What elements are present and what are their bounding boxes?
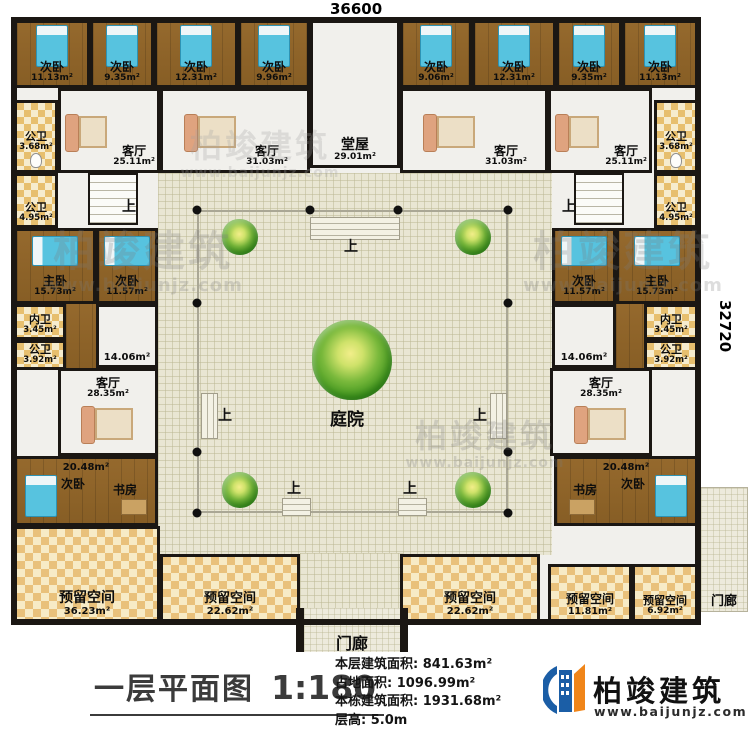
- tree-icon: [455, 219, 491, 255]
- room-area: 11.13m²: [639, 74, 681, 84]
- steps-icon: [398, 498, 427, 516]
- room-bedroom-study-suite: 20.48m² 次卧 书房: [14, 456, 158, 526]
- room-area: 4.95m²: [19, 214, 53, 223]
- entry-corridor-floor: [300, 553, 404, 613]
- sofa-icon: [63, 110, 111, 154]
- column-dot: [504, 448, 513, 457]
- room-area: 20.48m²: [557, 462, 695, 473]
- room-label: 预留空间: [444, 592, 496, 606]
- room-hall: 14.06m²: [96, 304, 158, 368]
- room-label: 预留空间: [566, 593, 614, 606]
- room-bathroom: 公卫4.95m²: [14, 173, 58, 228]
- room-area: 3.68m²: [19, 143, 53, 152]
- staircase: [574, 173, 624, 225]
- room-bedroom: 次卧12.31m²: [472, 20, 556, 88]
- room-hall: 14.06m²: [552, 304, 616, 368]
- room-label: 预留空间: [59, 591, 115, 606]
- sofa-icon: [182, 110, 240, 154]
- steps-icon: [490, 393, 507, 439]
- room-bedroom: 次卧11.13m²: [14, 20, 90, 88]
- room-bedroom: 次卧9.06m²: [400, 20, 472, 88]
- room-area: 3.45m²: [654, 326, 688, 335]
- stat-value: 1096.99m²: [397, 676, 475, 691]
- stat-label: 本栋建筑面积:: [335, 694, 418, 709]
- room-area: 25.11m²: [113, 158, 155, 168]
- bed-icon: [32, 236, 78, 266]
- floorplan-canvas: 上 上 上 上 上 上 上 庭院 次卧11.13m² 次卧9.35m² 次卧12…: [0, 0, 750, 741]
- room-label: 书房: [113, 481, 137, 498]
- room-area: 3.92m²: [654, 356, 688, 365]
- room-area: 6.92m²: [647, 607, 683, 617]
- room-area: 31.03m²: [485, 158, 527, 168]
- room-area: 11.13m²: [31, 74, 73, 84]
- stat-label: 本层建筑面积:: [335, 657, 418, 672]
- bed-icon: [634, 236, 680, 266]
- room-reserved: 预留空间36.23m²: [14, 526, 160, 622]
- tree-icon: [222, 219, 258, 255]
- desk-icon: [121, 499, 147, 515]
- room-label: 次卧: [61, 475, 85, 492]
- room-label: 内卫: [660, 314, 682, 326]
- stat-value: 841.63m²: [423, 657, 492, 672]
- stat-label: 占地面积:: [335, 676, 392, 691]
- room-label: 公卫: [25, 131, 47, 143]
- courtyard-label: 庭院: [330, 405, 364, 430]
- column-dot: [504, 509, 513, 518]
- room-area: 22.62m²: [447, 606, 493, 617]
- logo-icon: [543, 660, 587, 720]
- step-up-label: 上: [287, 478, 301, 498]
- porch-bottom: 门廊: [296, 608, 408, 655]
- room-label: 次卧: [621, 475, 645, 492]
- column-dot: [193, 509, 202, 518]
- room-area: 20.48m²: [17, 462, 155, 473]
- room-area: 11.57m²: [563, 288, 605, 298]
- sofa-icon: [421, 110, 479, 154]
- room-reserved: 预留空间22.62m²: [160, 554, 300, 622]
- room-area: 3.92m²: [23, 356, 57, 365]
- dimension-right: 32720: [716, 300, 734, 352]
- room-reserved: 预留空间22.62m²: [400, 554, 540, 622]
- room-label: 公卫: [25, 202, 47, 214]
- plan-stats: 本层建筑面积: 841.63m² 占地面积: 1096.99m² 本栋建筑面积:…: [335, 656, 501, 730]
- room-label: 公卫: [665, 131, 687, 143]
- room-bedroom: 次卧12.31m²: [154, 20, 238, 88]
- room-master-bedroom: 主卧15.73m²: [14, 228, 96, 304]
- room-bedroom: 次卧11.57m²: [552, 228, 616, 304]
- step-up-label: 上: [122, 196, 136, 216]
- room-label: 公卫: [665, 202, 687, 214]
- room-area: 14.06m²: [104, 352, 150, 363]
- plan-title-text: 一层平面图: [94, 672, 254, 707]
- toilet-icon: [670, 153, 682, 168]
- room-area: 3.68m²: [659, 143, 693, 152]
- bed-icon: [561, 236, 607, 266]
- porch-right: 门廊: [700, 487, 748, 612]
- room-bedroom: 次卧9.96m²: [238, 20, 310, 88]
- porch-label: 门廊: [336, 635, 368, 653]
- stat-row: 层高: 5.0m: [335, 712, 501, 731]
- room-area: 4.95m²: [659, 214, 693, 223]
- room-bedroom: 次卧11.13m²: [622, 20, 698, 88]
- room-living: 客厅28.35m²: [58, 368, 158, 456]
- room-master-bedroom: 主卧15.73m²: [616, 228, 698, 304]
- column-dot: [193, 448, 202, 457]
- room-label: 书房: [573, 481, 597, 498]
- porch-label: 门廊: [711, 595, 737, 609]
- room-area: 28.35m²: [87, 390, 129, 400]
- column-dot: [193, 299, 202, 308]
- dimension-top: 36600: [330, 0, 382, 18]
- column-dot: [193, 206, 202, 215]
- room-living: 客厅31.03m²: [400, 88, 548, 173]
- step-up-label: 上: [403, 478, 417, 498]
- stat-row: 本栋建筑面积: 1931.68m²: [335, 693, 501, 712]
- room-living: 客厅28.35m²: [550, 368, 652, 456]
- room-living: 客厅31.03m²: [160, 88, 310, 173]
- steps-icon: [282, 498, 311, 516]
- sofa-icon: [572, 402, 630, 446]
- sofa-icon: [79, 402, 137, 446]
- room-living: 客厅25.11m²: [548, 88, 652, 173]
- room-area: 29.01m²: [334, 153, 376, 163]
- steps-icon: [201, 393, 218, 439]
- room-bedroom: 次卧11.57m²: [96, 228, 158, 304]
- room-bathroom: 公卫3.92m²: [644, 340, 698, 370]
- room-area: 25.11m²: [605, 158, 647, 168]
- sofa-icon: [553, 110, 603, 154]
- room-area: 22.62m²: [207, 606, 253, 617]
- room-area: 3.45m²: [23, 326, 57, 335]
- column-dot: [504, 299, 513, 308]
- room-area: 12.31m²: [175, 74, 217, 84]
- big-tree-icon: [312, 320, 392, 400]
- room-area: 15.73m²: [636, 288, 678, 298]
- room-bedroom: 次卧9.35m²: [556, 20, 622, 88]
- room-bathroom: 公卫4.95m²: [654, 173, 698, 228]
- room-label: 预留空间: [204, 592, 256, 606]
- room-area: 14.06m²: [561, 352, 607, 363]
- stat-value: 5.0m: [371, 713, 408, 728]
- room-reserved: 预留空间11.81m²: [548, 564, 632, 622]
- room-area: 9.35m²: [104, 74, 140, 84]
- room-reserved: 预留空间6.92m²: [632, 564, 698, 622]
- column-dot: [394, 206, 403, 215]
- tree-icon: [455, 472, 491, 508]
- logo-url: www.baijunjz.com: [594, 704, 747, 719]
- room-area: 28.35m²: [580, 390, 622, 400]
- bed-icon: [104, 236, 150, 266]
- room-label: 内卫: [29, 314, 51, 326]
- brand-logo: 柏竣建筑 www.baijunjz.com: [543, 660, 743, 736]
- desk-icon: [569, 499, 595, 515]
- room-bedroom-study-suite: 20.48m² 书房 次卧: [554, 456, 698, 526]
- room-area: 11.81m²: [568, 607, 612, 617]
- room-area: 36.23m²: [64, 606, 110, 617]
- room-living: 客厅25.11m²: [58, 88, 160, 173]
- room-label: 堂屋: [341, 138, 369, 153]
- room-bathroom: 公卫3.68m²: [14, 100, 58, 173]
- bed-icon: [655, 475, 687, 517]
- room-bedroom: 次卧9.35m²: [90, 20, 154, 88]
- room-area: 31.03m²: [246, 158, 288, 168]
- toilet-icon: [30, 153, 42, 168]
- room-area: 12.31m²: [493, 74, 535, 84]
- room-bathroom: 公卫3.68m²: [654, 100, 698, 173]
- step-up-label: 上: [562, 196, 576, 216]
- bed-icon: [25, 475, 57, 517]
- room-main-hall: 堂屋29.01m²: [310, 20, 400, 168]
- stat-row: 本层建筑面积: 841.63m²: [335, 656, 501, 675]
- tree-icon: [222, 472, 258, 508]
- room-area: 9.06m²: [418, 74, 454, 84]
- step-up-label: 上: [344, 236, 358, 256]
- room-bathroom: 公卫3.92m²: [14, 340, 66, 370]
- room-area: 15.73m²: [34, 288, 76, 298]
- stat-row: 占地面积: 1096.99m²: [335, 675, 501, 694]
- room-area: 11.57m²: [106, 288, 148, 298]
- room-area: 9.96m²: [256, 74, 292, 84]
- title-block: 一层平面图 1:180 本层建筑面积: 841.63m² 占地面积: 1096.…: [0, 652, 750, 741]
- room-ensuite-bath: 内卫3.45m²: [644, 304, 698, 340]
- room-ensuite-bath: 内卫3.45m²: [14, 304, 66, 340]
- step-up-label: 上: [218, 405, 232, 425]
- column-dot: [504, 206, 513, 215]
- stat-value: 1931.68m²: [423, 694, 501, 709]
- column-dot: [306, 206, 315, 215]
- stat-label: 层高:: [335, 713, 366, 728]
- room-area: 9.35m²: [571, 74, 607, 84]
- step-up-label: 上: [473, 405, 487, 425]
